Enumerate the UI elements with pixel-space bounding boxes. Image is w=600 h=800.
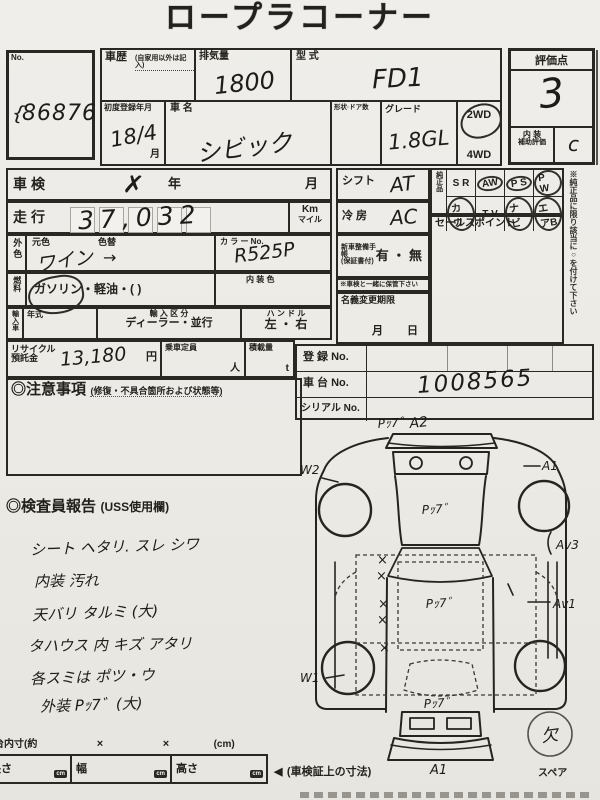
import-type-value: ディーラー・並行 [98, 318, 240, 330]
recycle-cell: リサイクル 預託金 13,180 円 [8, 342, 162, 376]
storage-note-strip: ※車検と一緒に保管下さい [336, 278, 430, 292]
history-label: 車歴 [105, 52, 127, 64]
registration-rows: 登 録 No. 車 台 No. 1008565 シリアル No. [295, 344, 594, 420]
service-book-value: 有 ・ 無 [376, 249, 422, 263]
equipment-ps-label: P S [505, 174, 533, 192]
auction-sheet: ロープラコーナー No. { 86876 車歴 (自家用以外は記入) 排気量 1… [0, 0, 600, 800]
color-row: 外色 元色 色替 ワイン → カ ラ ー No. R525P [6, 234, 332, 272]
bed-dimension-label: 台内寸(約 [0, 739, 37, 750]
first-registration-label: 初度登録年月 [104, 104, 152, 112]
body-door-label: 形状·ドア数 [334, 105, 369, 112]
x-mark-1: × [377, 553, 388, 568]
windshield-outline [388, 548, 492, 582]
equipment-ps: P S [504, 170, 533, 196]
ac-label: 冷 房 [342, 211, 367, 223]
drive-cell: 2WD 4WD [456, 100, 502, 166]
evaluation-label: 評価点 [535, 55, 568, 67]
import-row: 輸入車 年式 輸 入 区 分 ディーラー・並行 ハ ン ド ル 左 ・ 右 [6, 307, 332, 340]
car-name-value: シビック [194, 122, 294, 168]
width-cell: 幅 cm [72, 756, 172, 782]
inspector-note-6: 外装 Pｯ7゛(大) [40, 692, 143, 717]
aux-eval-label: 補助評価 [511, 139, 553, 146]
caution-box: ◎注意事項 (修復・不具合箇所および状態等) [6, 378, 302, 476]
front-damage-note: Pｯ7゛ [377, 415, 411, 431]
evaluation-score: 3 [509, 67, 594, 121]
hood-damage-note: Pｯ7゛ [421, 501, 455, 517]
load-cell: 積載量 t [246, 342, 293, 376]
front-damage-grade: A2 [408, 414, 429, 432]
shift-label: シフト [342, 176, 375, 188]
equipment-aw-label: AW [476, 174, 504, 192]
left-front-wheel [319, 484, 371, 536]
capacity-cell: 乗車定員 人 [162, 342, 246, 376]
left-headlight-mark [410, 457, 422, 469]
interior-eval-row: 内 装 補助評価 c [511, 126, 592, 162]
recycle-row: リサイクル 預託金 13,180 円 乗車定員 人 積載量 t [6, 340, 295, 378]
km-label: Km [290, 205, 330, 216]
inspector-note-2: 内装 汚れ [34, 569, 99, 591]
sales-point-label: セールスポイント [435, 219, 562, 230]
car-name-label: 車 名 [170, 104, 193, 115]
right-rear-wheel [515, 641, 565, 691]
equipment-pw: P W [533, 170, 562, 196]
registration-divider-1 [447, 346, 448, 371]
sales-point-box: セールスポイント [430, 215, 564, 344]
right-mid-mark: Av3 [555, 538, 579, 552]
inspection-month-label: 月 [305, 177, 318, 191]
interior-color-label: 内 装 色 [246, 276, 330, 284]
displacement-cell: 排気量 1800 [194, 48, 292, 102]
ton-label: t [286, 364, 289, 375]
displacement-label: 排気量 [199, 52, 229, 63]
rear-lamp-left [410, 718, 434, 729]
right-headlight-mark [460, 457, 472, 469]
rear-glass-dashed [404, 660, 478, 696]
first-registration-month: 月 [150, 150, 160, 161]
rear-lamp-right [447, 718, 471, 729]
spare-label: スペア [538, 767, 567, 779]
dimension-note-text: (車検証上の寸法) [287, 766, 371, 778]
history-cell: 車歴 (自家用以外は記入) [100, 48, 196, 102]
inspector-report-header: ◎検査員報告 (USS使用欄) [6, 498, 169, 516]
transfer-day-label: 日 [407, 326, 418, 338]
load-label: 積載量 [249, 344, 293, 352]
trunk-damage-note: Pｯ7゛ [423, 695, 457, 711]
inspector-note-3: 天バリ タルミ (大) [32, 600, 159, 625]
persons-label: 人 [230, 364, 240, 375]
bed-cm: (cm) [214, 739, 235, 750]
right-front-wheel [519, 481, 569, 531]
exterior-color-label-cell: 外色 [8, 236, 27, 270]
handle-value: 左 ・ 右 [242, 318, 330, 331]
width-label: 幅 [76, 764, 87, 776]
roof-damage-note: Pｯ7゛ [425, 595, 459, 611]
equipment-sr: S R [446, 170, 475, 196]
equipment-pw-label: P W [532, 168, 563, 198]
history-note: (自家用以外は記入) [135, 55, 194, 71]
displacement-value: 1800 [213, 66, 277, 100]
drive-2wd: 2WD [458, 102, 500, 142]
base-color-label: 元色 [32, 238, 50, 247]
handle-cell: ハ ン ド ル 左 ・ 右 [242, 309, 330, 338]
lot-number-box: No. { 86876 [6, 50, 95, 160]
import-label-cell: 輸入車 [8, 309, 24, 338]
model-code-label: 型 式 [296, 52, 319, 63]
import-type-cell: 輸 入 区 分 ディーラー・並行 [98, 309, 242, 338]
dimension-arrow-icon: ◀ [274, 766, 282, 778]
model-code-cell: 型 式 FD1 [290, 48, 502, 102]
x-mark-2: × [376, 569, 387, 584]
genuine-label-cell: 純正品 [432, 170, 446, 213]
fuel-options: ・軽油・( ) [82, 283, 141, 296]
inspector-note-5: 各スミは ポツ・ウ [30, 664, 155, 689]
registration-no-row: 登 録 No. [297, 346, 592, 372]
height-cm-badge: cm [250, 770, 263, 778]
capacity-label: 乗車定員 [165, 344, 244, 352]
car-condition-diagram: Pｯ7゛ A2 W2 A1 Pｯ7゛ Av3 Av1 W1 Pｯ7゛ Pｯ7゛ … [298, 412, 598, 780]
service-book-note: (保証書付) [341, 258, 374, 265]
bed-x2: × [163, 738, 169, 750]
fuel-label-cell: 燃料 [8, 274, 27, 305]
equipment-grid: S R AW P S P W カワ T V ナビ エアB [446, 170, 562, 213]
x-mark-3: × [378, 597, 389, 612]
fuel-label: 燃料 [12, 276, 20, 292]
x-mark-5: × [379, 641, 390, 656]
exterior-color-label: 外色 [12, 238, 21, 260]
color-no-cell: カ ラ ー No. R525P [214, 236, 330, 270]
mileage-row: 走行 37,032 Km マイル [6, 201, 332, 234]
color-arrow: → [103, 248, 116, 267]
shift-value: AT [389, 171, 416, 197]
left-rear-wheel [322, 642, 374, 694]
inspection-label: 車検 [13, 177, 49, 192]
bed-x1: × [97, 738, 103, 750]
interior-color-cell: 内 装 色 [214, 274, 330, 305]
inspector-note-4: タハウス 内 キズ アタリ [28, 633, 193, 657]
dimension-note: ◀ (車検証上の寸法) [274, 762, 371, 780]
mileage-unit-cell: Km マイル [288, 203, 330, 232]
left-front-mark: W2 [300, 463, 320, 477]
chassis-no-row: 車 台 No. 1008565 [297, 372, 592, 398]
model-year-cell: 年式 [24, 309, 98, 338]
cropped-bottom-text [300, 792, 590, 798]
length-cm-badge: cm [54, 770, 67, 778]
shift-cell: シフト AT [336, 168, 430, 201]
equipment-aw: AW [475, 170, 504, 196]
spare-missing-mark: 欠 [540, 725, 562, 747]
lot-number-value: 86876 [22, 101, 97, 126]
transfer-month-label: 月 [372, 326, 383, 338]
model-year-label: 年式 [27, 311, 96, 319]
genuine-label: 純正品 [435, 171, 442, 192]
length-label: 長さ [0, 764, 12, 776]
service-book-cell: 新車整備手帳 (保証書付) 有 ・ 無 [336, 234, 430, 278]
inspector-report-label: ◎検査員報告 [6, 498, 96, 515]
inspection-year-label: 年 [168, 177, 181, 191]
car-name-cell: 車 名 シビック [164, 100, 332, 166]
equipment-sr-label: S R [453, 178, 470, 189]
chassis-no-label: 車 台 No. [297, 372, 367, 397]
grade-cell: グレード 1.8GL [380, 100, 458, 166]
evaluation-box: 評価点 3 内 装 補助評価 c [508, 48, 595, 165]
width-cm-badge: cm [154, 770, 167, 778]
equipment-box: 純正品 S R AW P S P W カワ T V ナビ エアB [430, 168, 564, 215]
model-code-value: FD1 [371, 63, 424, 96]
page-title: ロープラコーナー [0, 2, 600, 35]
body-door-cell: 形状·ドア数 [330, 100, 382, 166]
interior-eval-label-cell: 内 装 補助評価 [511, 128, 555, 162]
rear-bumper-mark: A1 [429, 763, 447, 778]
interior-eval-value: c [555, 128, 592, 162]
transfer-deadline-box: 名義変更期限 月 日 [336, 292, 430, 344]
height-label: 高さ [176, 764, 198, 776]
registration-divider-3 [552, 346, 553, 371]
grade-label: グレード [385, 105, 421, 114]
ac-cell: 冷 房 AC [336, 201, 430, 234]
grade-value: 1.8GL [387, 125, 450, 154]
inspector-report-note: (USS使用欄) [100, 500, 169, 514]
mileage-label: 走行 [13, 210, 49, 225]
cropped-right-edge [596, 50, 598, 165]
ac-value: AC [389, 204, 418, 230]
length-cell: 長さ cm [0, 756, 72, 782]
right-side-outline [494, 438, 566, 709]
color-change-label: 色替 [98, 238, 116, 247]
left-rear-mark: W1 [300, 671, 320, 685]
first-registration-cell: 初度登録年月 18/4 月 [100, 100, 166, 166]
inspector-note-1: シート ヘタリ. スレ シワ [30, 533, 200, 560]
first-registration-value: 18/4 [108, 120, 159, 152]
yen-label: 円 [146, 352, 157, 364]
registration-no-label: 登 録 No. [297, 346, 367, 371]
dimension-row: 長さ cm 幅 cm 高さ cm [0, 754, 268, 784]
mile-label: マイル [290, 216, 330, 224]
right-front-mark: A1 [541, 459, 558, 473]
right-rear-mark: Av1 [552, 597, 576, 611]
recycle-value: 13,180 [59, 343, 127, 371]
transfer-deadline-label: 名義変更期限 [341, 296, 428, 305]
caution-note: (修復・不具合箇所および状態等) [90, 386, 222, 397]
lot-number-label: No. [11, 54, 24, 62]
drive-2wd-circle [457, 99, 506, 142]
rear-panel-outline [400, 712, 481, 736]
storage-note: ※車検と一緒に保管下さい [340, 282, 428, 289]
bed-dimension-line: 台内寸(約 × × (cm) [0, 734, 294, 752]
inspection-cross: ✗ [122, 169, 146, 200]
inspection-row: 車検 ✗ 年 月 [6, 168, 332, 201]
import-label: 輸入車 [11, 310, 18, 331]
caution-label: ◎注意事項 [11, 382, 86, 398]
fuel-row: 燃料 ガソリン ・軽油・( ) 内 装 色 [6, 272, 332, 307]
x-mark-4: × [377, 613, 388, 628]
height-cell: 高さ cm [172, 756, 266, 782]
